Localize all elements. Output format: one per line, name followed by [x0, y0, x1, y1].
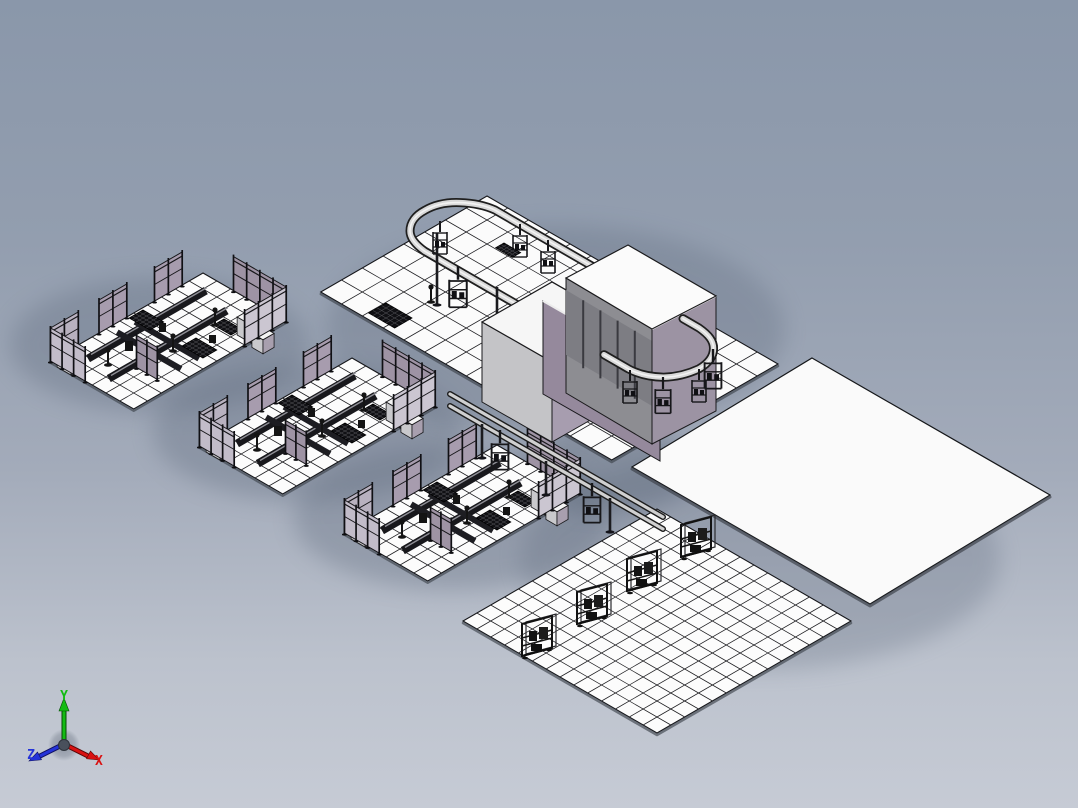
cad-viewport[interactable]: X Y Z: [0, 0, 1078, 808]
y-axis-label: Y: [60, 689, 68, 704]
x-axis-label: X: [95, 754, 103, 769]
z-axis-label: Z: [27, 748, 35, 763]
orientation-triad[interactable]: X Y Z: [27, 689, 103, 769]
model-scene: [10, 196, 1050, 735]
triad-origin-ball: [59, 740, 70, 751]
scene-canvas: X Y Z: [0, 0, 1078, 808]
